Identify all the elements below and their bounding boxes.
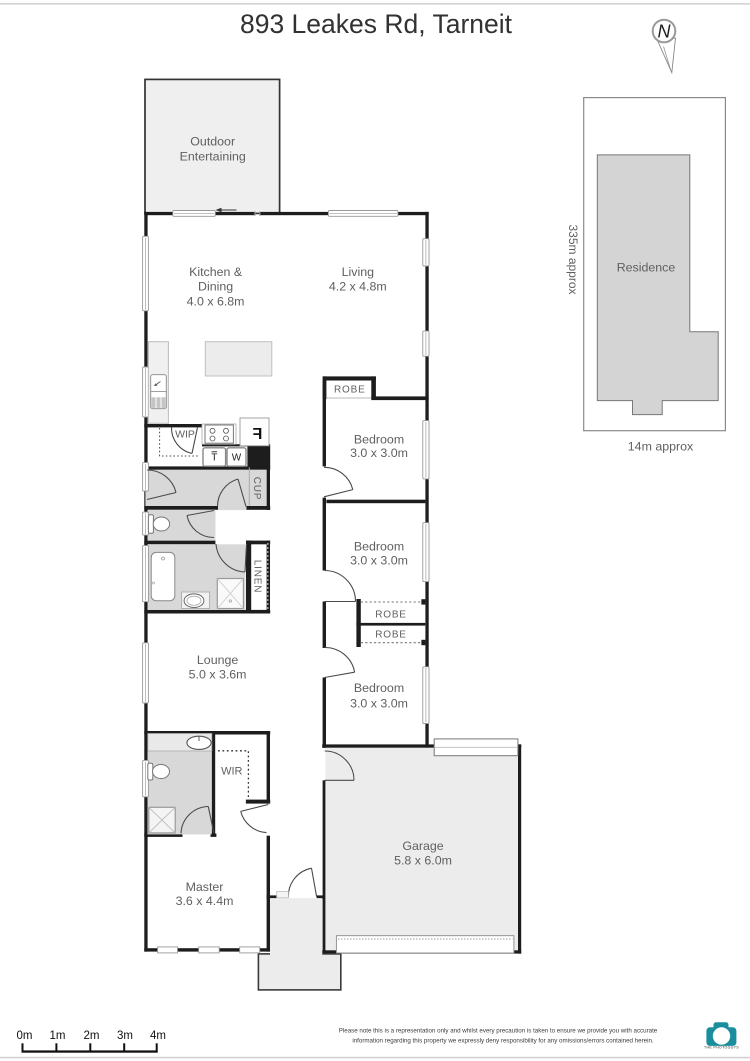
svg-text:WIP: WIP: [175, 429, 195, 441]
svg-text:5.8 x 6.0m: 5.8 x 6.0m: [394, 854, 452, 868]
svg-text:5.0 x 3.6m: 5.0 x 3.6m: [189, 668, 247, 682]
svg-text:3.0 x 3.0m: 3.0 x 3.0m: [350, 554, 408, 568]
svg-text:F: F: [252, 426, 262, 443]
svg-text:Garage: Garage: [402, 839, 443, 853]
svg-text:3m: 3m: [117, 1030, 133, 1042]
svg-text:ROBE: ROBE: [334, 384, 366, 395]
svg-text:4.0 x 6.8m: 4.0 x 6.8m: [187, 295, 245, 309]
svg-text:335m approx: 335m approx: [566, 224, 580, 294]
svg-text:3.0 x 3.0m: 3.0 x 3.0m: [350, 697, 408, 711]
svg-text:4m: 4m: [150, 1030, 166, 1042]
svg-text:Bedroom: Bedroom: [354, 681, 404, 695]
svg-text:Kitchen &: Kitchen &: [189, 265, 243, 279]
svg-text:3.0 x 3.0m: 3.0 x 3.0m: [350, 446, 408, 460]
svg-text:Living: Living: [342, 265, 374, 279]
svg-text:ROBE: ROBE: [375, 609, 407, 620]
svg-text:1m: 1m: [50, 1030, 66, 1042]
svg-text:WIR: WIR: [221, 766, 242, 778]
svg-text:Entertaining: Entertaining: [180, 150, 246, 164]
svg-text:Bedroom: Bedroom: [354, 433, 404, 447]
svg-text:Dining: Dining: [198, 280, 233, 294]
svg-text:Please note this is a represen: Please note this is a representation onl…: [339, 1028, 658, 1035]
svg-text:CUP: CUP: [251, 477, 262, 501]
svg-text:W: W: [232, 452, 242, 463]
svg-text:Residence: Residence: [617, 261, 676, 275]
svg-text:information regarding this pro: information regarding this property we e…: [352, 1038, 654, 1045]
svg-text:ROBE: ROBE: [375, 629, 407, 640]
svg-text:Master: Master: [186, 880, 224, 894]
svg-text:N: N: [658, 22, 672, 42]
svg-text:LINEN: LINEN: [252, 560, 263, 593]
svg-text:14m approx: 14m approx: [628, 440, 694, 454]
svg-text:2m: 2m: [84, 1030, 100, 1042]
svg-text:Lounge: Lounge: [197, 653, 238, 667]
svg-text:Bedroom: Bedroom: [354, 540, 404, 554]
svg-text:Outdoor: Outdoor: [190, 135, 235, 149]
svg-text:3.6 x 4.4m: 3.6 x 4.4m: [176, 894, 234, 908]
svg-text:THE PHOTOGUYS: THE PHOTOGUYS: [704, 1046, 739, 1050]
svg-text:T: T: [211, 452, 217, 463]
svg-text:0m: 0m: [17, 1030, 33, 1042]
svg-text:893 Leakes Rd, Tarneit: 893 Leakes Rd, Tarneit: [240, 9, 513, 39]
svg-text:4.2 x 4.8m: 4.2 x 4.8m: [329, 280, 387, 294]
